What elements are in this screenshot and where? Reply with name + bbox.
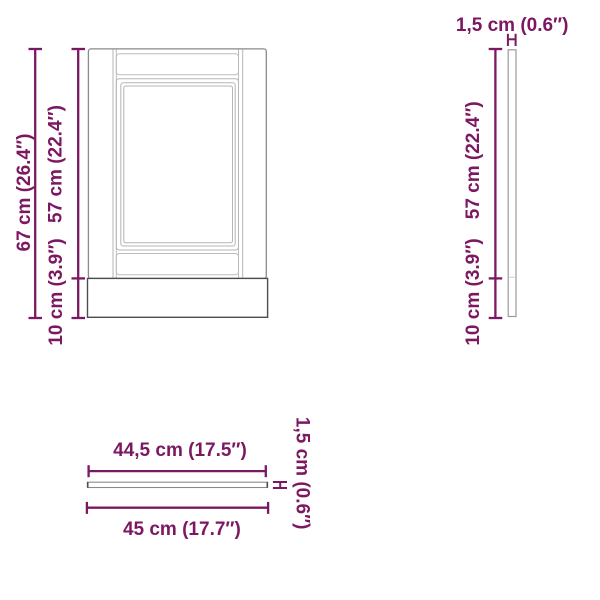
svg-text:1,5 cm (0.6″): 1,5 cm (0.6″): [292, 417, 313, 530]
svg-text:57 cm (22.4″): 57 cm (22.4″): [463, 101, 484, 219]
svg-text:67 cm (26.4″): 67 cm (26.4″): [14, 134, 35, 252]
svg-text:44,5 cm (17.5″): 44,5 cm (17.5″): [113, 440, 247, 461]
svg-text:1,5 cm (0.6″): 1,5 cm (0.6″): [456, 15, 569, 36]
svg-text:57 cm (22.4″): 57 cm (22.4″): [46, 105, 67, 223]
svg-text:45 cm (17.7″): 45 cm (17.7″): [123, 519, 241, 540]
svg-text:10 cm (3.9″): 10 cm (3.9″): [463, 238, 484, 345]
svg-text:10 cm (3.9″): 10 cm (3.9″): [46, 238, 67, 345]
